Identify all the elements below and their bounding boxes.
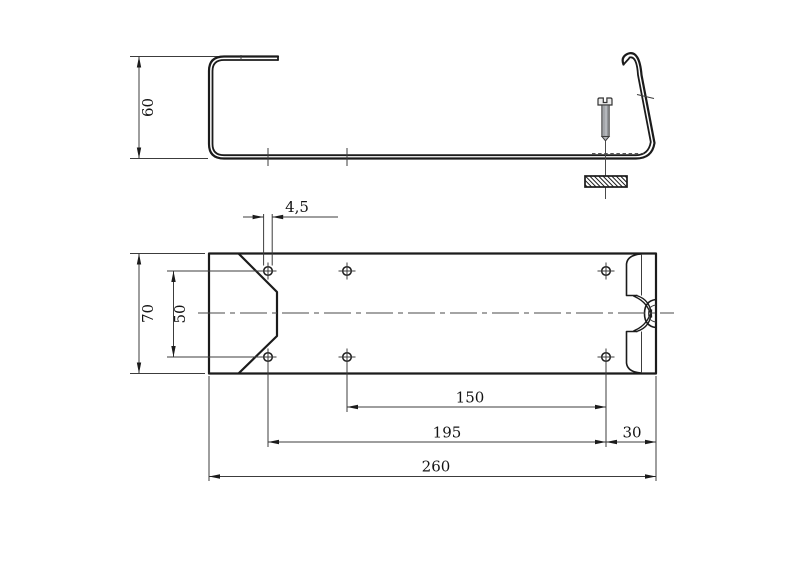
hole	[339, 263, 356, 280]
dim-plate-width-label: 70	[139, 304, 157, 323]
technical-drawing-page: 60	[0, 0, 800, 571]
dim-total-length: 260	[209, 458, 656, 479]
screw-head	[598, 98, 612, 105]
hole	[598, 263, 615, 280]
arrowhead-down	[137, 148, 141, 159]
dim-height-label: 60	[139, 98, 157, 117]
plan-view: 4,5 50 70	[130, 198, 674, 481]
dim-260-label: 260	[422, 458, 451, 476]
technical-drawing: 60	[0, 0, 800, 571]
profile-inner-line	[213, 57, 651, 155]
side-view: 60	[130, 53, 655, 199]
profile-outer-line	[209, 53, 655, 158]
dim-height: 60	[130, 57, 243, 159]
dim-row-spacing-label: 50	[171, 304, 189, 323]
bottom-notch	[627, 332, 642, 374]
dim-30-label: 30	[622, 424, 641, 442]
screw-tip	[602, 137, 609, 141]
screw-shank	[602, 105, 609, 137]
top-notch	[627, 254, 642, 296]
dim-row-spacing: 50	[167, 271, 260, 357]
wall-section-hatch	[576, 176, 636, 188]
dim-right-edge: 30	[606, 424, 656, 445]
dim-left-to-right: 195	[268, 424, 606, 445]
dim-hole-diameter: 4,5	[243, 198, 338, 266]
holes	[260, 263, 615, 366]
hole	[339, 349, 356, 366]
dim-hole-diameter-label: 4,5	[285, 198, 309, 216]
arrowhead-up	[137, 57, 141, 68]
dim-mid-to-right: 150	[347, 389, 606, 410]
hook-tip-cap	[624, 59, 630, 65]
dim-195-label: 195	[433, 424, 462, 442]
screw-icon	[598, 98, 612, 141]
dim-150-label: 150	[456, 389, 485, 407]
